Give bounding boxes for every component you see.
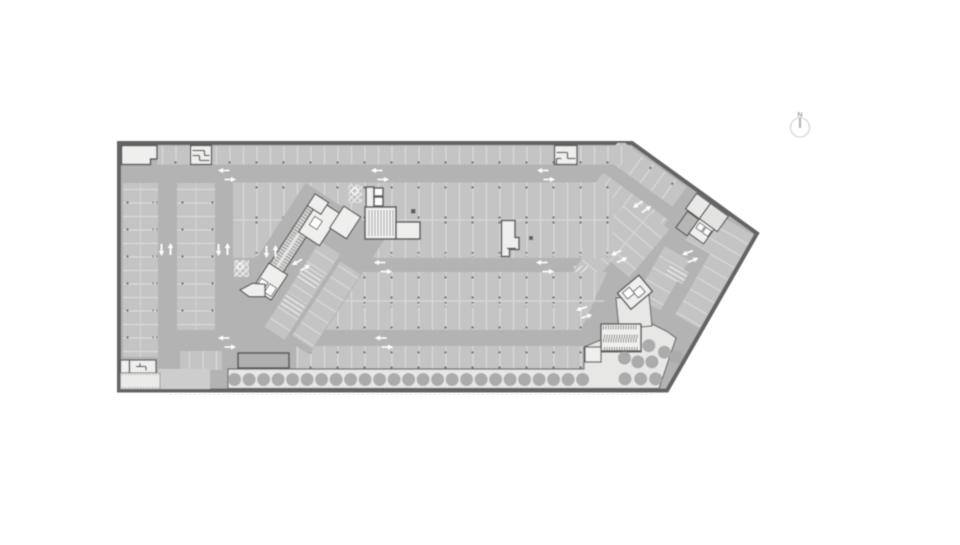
svg-text:N: N <box>797 112 802 119</box>
